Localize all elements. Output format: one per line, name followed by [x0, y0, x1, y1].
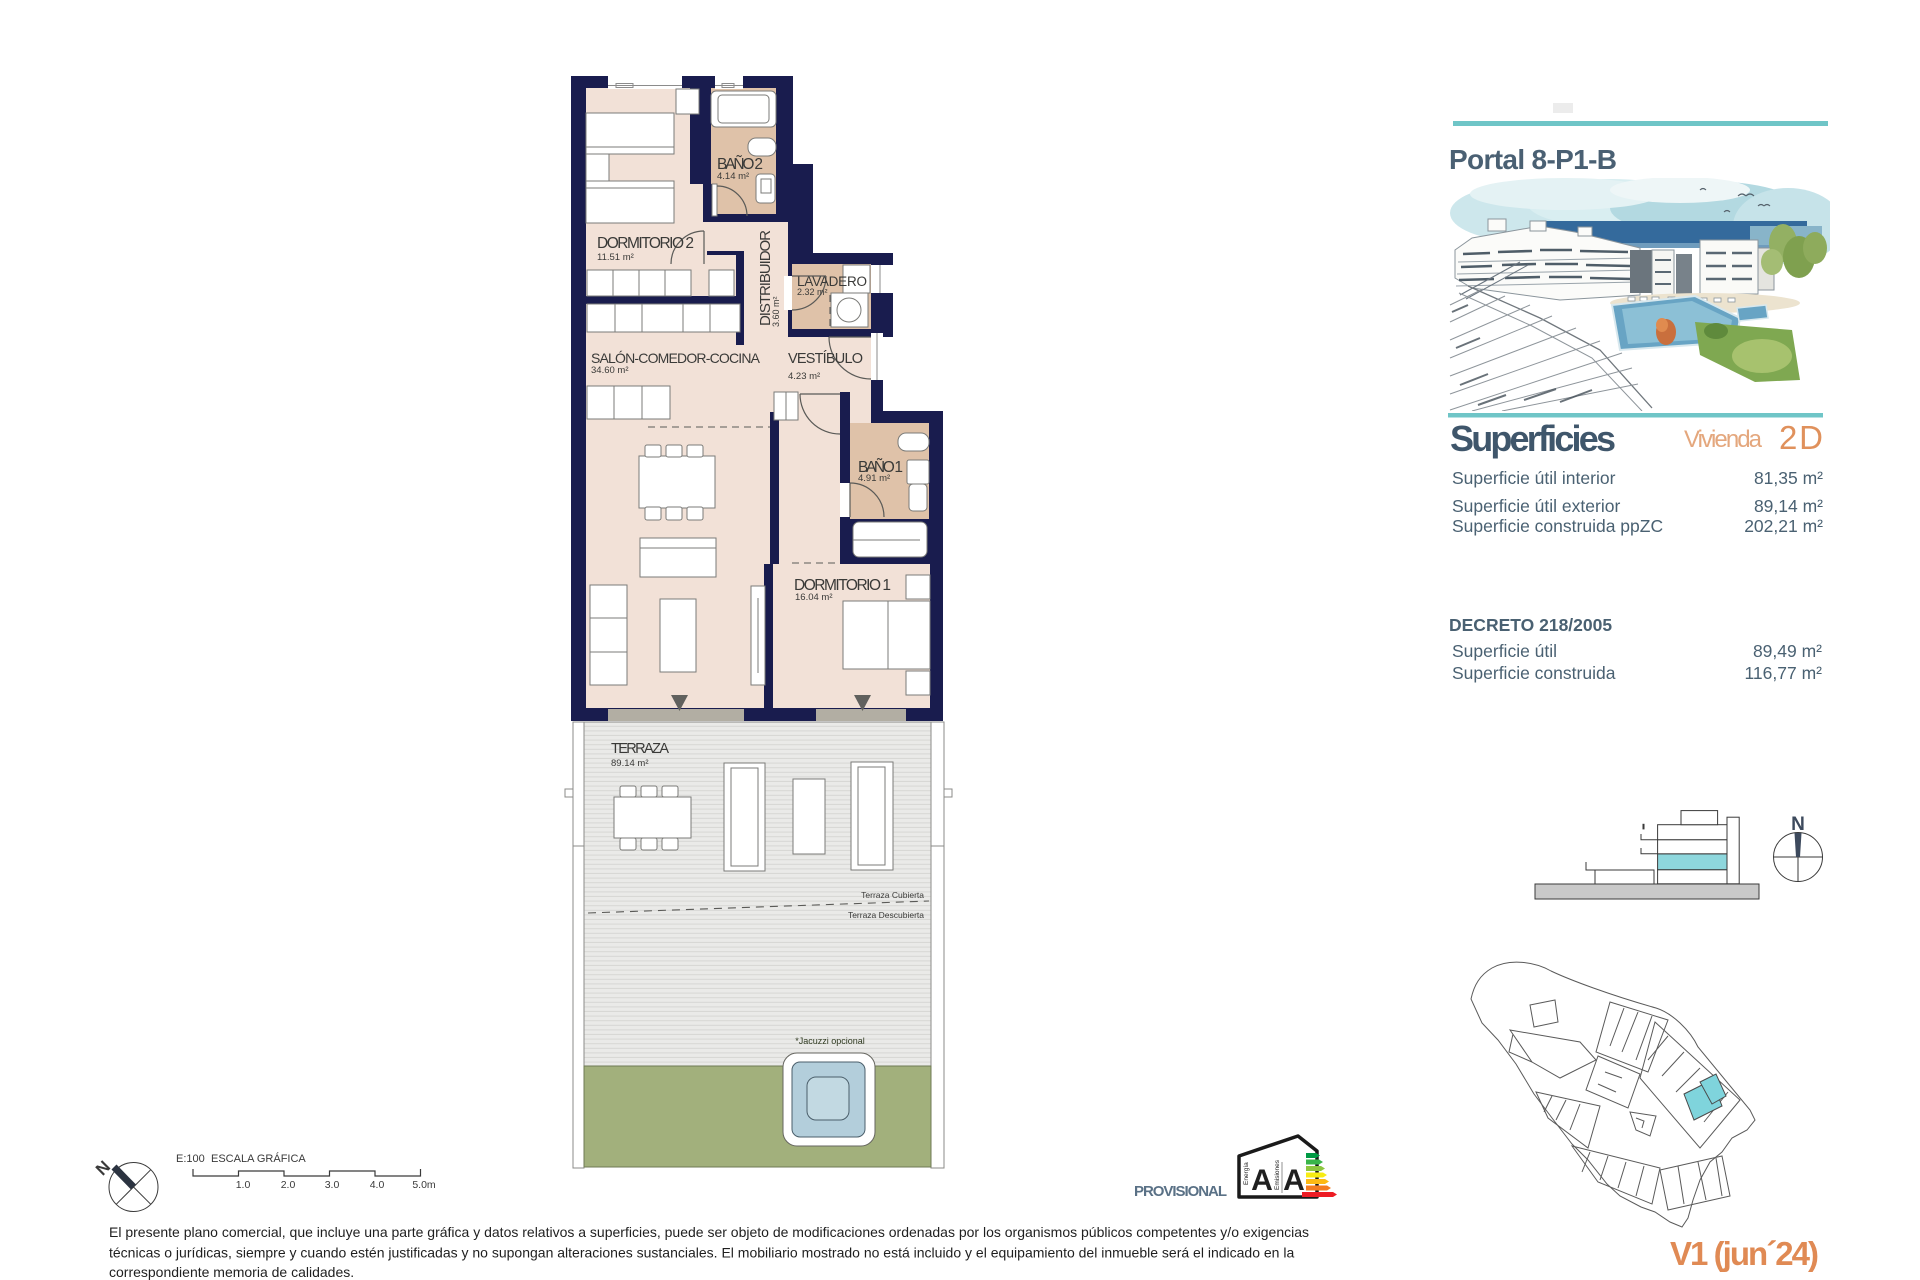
svg-text:4.23 m²: 4.23 m²	[788, 371, 820, 382]
svg-text:A: A	[1251, 1164, 1273, 1197]
svg-text:89,49 m²: 89,49 m²	[1753, 641, 1822, 661]
svg-text:1.0: 1.0	[236, 1179, 251, 1191]
svg-text:Superficies: Superficies	[1450, 418, 1616, 459]
svg-text:4.14 m²: 4.14 m²	[717, 171, 749, 182]
svg-text:2.32 m²: 2.32 m²	[797, 287, 828, 297]
svg-text:89,14 m²: 89,14 m²	[1754, 496, 1823, 516]
svg-text:Vivienda: Vivienda	[1684, 426, 1763, 453]
svg-text:Terraza Descubierta: Terraza Descubierta	[848, 910, 924, 920]
svg-text:116,77 m²: 116,77 m²	[1745, 663, 1823, 683]
svg-text:5.0m: 5.0m	[412, 1179, 436, 1191]
svg-text:34.60 m²: 34.60 m²	[591, 365, 629, 376]
svg-text:V1 (jun´24): V1 (jun´24)	[1670, 1235, 1819, 1272]
svg-text:correspondiente memoria de cal: correspondiente memoria de calidades.	[109, 1264, 354, 1280]
svg-text:81,35 m²: 81,35 m²	[1754, 468, 1823, 488]
svg-text:Superficie útil: Superficie útil	[1452, 641, 1557, 661]
svg-text:Terraza Cubierta: Terraza Cubierta	[861, 890, 924, 900]
svg-text:VESTÍBULO: VESTÍBULO	[788, 350, 863, 367]
svg-text:N: N	[1791, 814, 1805, 835]
svg-text:DECRETO 218/2005: DECRETO 218/2005	[1449, 615, 1612, 635]
svg-text:2.0: 2.0	[281, 1179, 296, 1191]
svg-text:ESCALA GRÁFICA: ESCALA GRÁFICA	[211, 1152, 306, 1165]
svg-text:Superficie útil interior: Superficie útil interior	[1452, 468, 1616, 488]
svg-text:89.14 m²: 89.14 m²	[611, 758, 649, 769]
svg-text:4.91 m²: 4.91 m²	[858, 473, 890, 484]
svg-text:16.04 m²: 16.04 m²	[795, 592, 833, 603]
svg-text:*Jacuzzi opcional: *Jacuzzi opcional	[795, 1036, 865, 1046]
svg-text:11.51 m²: 11.51 m²	[597, 252, 634, 263]
svg-text:E:100: E:100	[176, 1153, 205, 1165]
svg-text:TERRAZA: TERRAZA	[611, 741, 669, 757]
svg-text:Emisiones: Emisiones	[1274, 1159, 1281, 1190]
svg-text:3.0: 3.0	[325, 1179, 340, 1191]
svg-text:Superficie útil exterior: Superficie útil exterior	[1452, 496, 1620, 516]
svg-text:técnicas o jurídicas, siempre: técnicas o jurídicas, siempre y cuando e…	[109, 1245, 1294, 1261]
svg-text:SALÓN-COMEDOR-COCINA: SALÓN-COMEDOR-COCINA	[591, 350, 761, 366]
svg-text:Superficie construida: Superficie construida	[1452, 663, 1616, 683]
svg-text:2D: 2D	[1779, 419, 1823, 456]
svg-text:A: A	[1283, 1164, 1305, 1197]
svg-text:4.0: 4.0	[370, 1179, 385, 1191]
svg-text:El presente plano comercial, q: El presente plano comercial, que incluye…	[109, 1224, 1309, 1240]
svg-text:Portal 8-P1-B: Portal 8-P1-B	[1449, 144, 1617, 175]
svg-text:Energía: Energía	[1243, 1162, 1250, 1185]
svg-text:DORMITORIO 2: DORMITORIO 2	[597, 235, 694, 252]
svg-text:202,21 m²: 202,21 m²	[1744, 516, 1823, 536]
svg-text:3.60 m²: 3.60 m²	[771, 296, 781, 327]
svg-text:PROVISIONAL: PROVISIONAL	[1134, 1183, 1227, 1200]
svg-text:Superficie construida ppZC: Superficie construida ppZC	[1452, 516, 1663, 536]
